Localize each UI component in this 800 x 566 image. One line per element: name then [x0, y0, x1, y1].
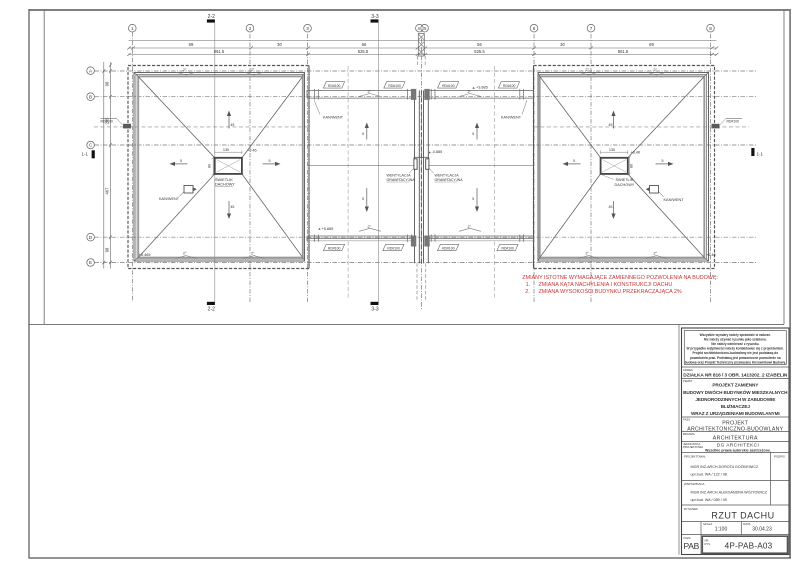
svg-text:45: 45	[230, 205, 234, 209]
svg-text:2°: 2°	[251, 68, 255, 72]
svg-text:98: 98	[104, 247, 109, 252]
svg-text:5: 5	[362, 132, 364, 136]
svg-text:3-3: 3-3	[371, 306, 378, 312]
svg-text:RYSUNEK: RYSUNEK	[684, 507, 698, 511]
svg-text:98: 98	[104, 81, 109, 86]
svg-text:2°: 2°	[183, 252, 187, 256]
svg-text:2-2: 2-2	[208, 14, 215, 20]
svg-text:RD#100: RD#100	[328, 84, 341, 88]
svg-text:MGR INŻ.ARCH.DOROTA GOŹKIEWICZ: MGR INŻ.ARCH.DOROTA GOŹKIEWICZ	[691, 464, 759, 469]
svg-text:2.: 2.	[525, 289, 530, 295]
svg-text:FAZA: FAZA	[684, 536, 691, 540]
svg-text:ADRES: ADRES	[683, 368, 693, 372]
svg-text:ŚWIETLIK: ŚWIETLIK	[215, 177, 233, 182]
svg-text:3: 3	[306, 26, 309, 31]
svg-text:861.5: 861.5	[214, 49, 225, 54]
svg-text:Nie należy odmierzać z rysunku: Nie należy odmierzać z rysunku.	[711, 342, 759, 346]
svg-text:-0.885: -0.885	[432, 150, 443, 154]
svg-text:6: 6	[533, 26, 536, 31]
svg-text:PROJEKTOWA: PROJEKTOWA	[683, 445, 703, 449]
svg-text:45: 45	[230, 123, 234, 127]
svg-text:Projekt architektoniczno-budow: Projekt architektoniczno-budowlany nie j…	[692, 351, 778, 355]
svg-text:TEMAT: TEMAT	[683, 379, 692, 383]
svg-text:525.5: 525.5	[358, 49, 369, 54]
svg-text:+6.46: +6.46	[631, 151, 641, 155]
svg-text:PAB: PAB	[684, 541, 700, 551]
svg-text:5: 5	[472, 197, 474, 201]
svg-text:1-1: 1-1	[757, 151, 764, 156]
svg-text:Wszelkie prawa autorskie zastr: Wszelkie prawa autorskie zastrzeżone.	[705, 448, 771, 452]
svg-text:2: 2	[249, 26, 252, 31]
svg-text:+3.885: +3.885	[476, 86, 488, 90]
svg-text:BUDOWY DWÓCH BUDYNKÓW MIESZKAL: BUDOWY DWÓCH BUDYNKÓW MIESZKALNYCH	[683, 388, 788, 395]
svg-text:45: 45	[609, 205, 613, 209]
svg-text:RYS.: RYS.	[705, 542, 711, 546]
svg-text:3-3: 3-3	[371, 14, 378, 20]
svg-text:5: 5	[573, 159, 575, 163]
svg-text:RD#100: RD#100	[502, 246, 515, 250]
svg-text:NR: NR	[705, 538, 709, 542]
svg-text:467: 467	[104, 187, 109, 195]
svg-text:130: 130	[609, 148, 615, 152]
svg-text:A: A	[89, 68, 93, 73]
svg-text:GRAWITACYJNA: GRAWITACYJNA	[387, 178, 416, 182]
svg-text:upr.bud. WA / 089 / 09: upr.bud. WA / 089 / 09	[691, 498, 727, 502]
svg-text:DZIAŁKA NR 816 / 3 OBR. 141320: DZIAŁKA NR 816 / 3 OBR. 1413202_2 IZABEL…	[683, 372, 788, 378]
svg-text:W przypadku wątpliwości należy: W przypadku wątpliwości należy kontaktow…	[687, 347, 785, 351]
svg-text:BRANŻA: BRANŻA	[683, 431, 695, 436]
svg-text:KAN/WENT: KAN/WENT	[664, 198, 685, 202]
svg-text:DATA: DATA	[743, 522, 750, 526]
svg-text:budowę oraz Projekt Techniczny: budowę oraz Projekt Techniczny przekazan…	[685, 360, 786, 364]
svg-text:56: 56	[362, 42, 367, 47]
svg-text:2°: 2°	[586, 252, 590, 256]
svg-text:GRAWITACYJNA: GRAWITACYJNA	[435, 178, 464, 182]
svg-text:RD#100: RD#100	[442, 246, 455, 250]
svg-text:ARCHITEKTURA: ARCHITEKTURA	[713, 435, 758, 441]
svg-text:2°: 2°	[368, 225, 372, 229]
svg-text:KAN/WENT: KAN/WENT	[323, 115, 344, 119]
svg-text:RD#100: RD#100	[727, 119, 740, 123]
svg-text:ZMIANA KĄTA NACHYLENIA I KONST: ZMIANA KĄTA NACHYLENIA I KONSTRUKCJI DAC…	[539, 282, 673, 288]
svg-text:upr.bud. WA / 122 / 08: upr.bud. WA / 122 / 08	[691, 473, 727, 477]
svg-text:ARCHITEKTONICZNO-BUDOWLANY: ARCHITEKTONICZNO-BUDOWLANY	[687, 426, 783, 432]
svg-text:5: 5	[362, 197, 364, 201]
svg-text:RD#100: RD#100	[101, 119, 114, 123]
svg-text:5: 5	[472, 132, 474, 136]
svg-text:ZMIANY ISTOTNE WYMAGAJĄCE ZAMI: ZMIANY ISTOTNE WYMAGAJĄCE ZAMIENNEGO POZ…	[522, 275, 718, 281]
svg-text:56: 56	[477, 42, 482, 47]
svg-text:2°: 2°	[183, 68, 187, 72]
svg-text:WENTYLACJA: WENTYLACJA	[435, 173, 460, 177]
svg-text:KAN/WENT: KAN/WENT	[159, 197, 180, 201]
svg-text:2°: 2°	[468, 225, 472, 229]
svg-text:+6.465: +6.465	[139, 253, 151, 257]
svg-text:2°: 2°	[468, 90, 472, 94]
svg-text:1: 1	[131, 26, 134, 31]
svg-text:+6.46: +6.46	[247, 149, 257, 153]
svg-text:861.5: 861.5	[618, 49, 629, 54]
svg-text:2-2: 2-2	[208, 306, 215, 312]
svg-text:2°: 2°	[654, 68, 658, 72]
svg-text:RD#100: RD#100	[388, 84, 401, 88]
svg-text:B: B	[89, 94, 92, 99]
svg-text:RD#100: RD#100	[442, 84, 455, 88]
svg-text:powadzenia prac. Podstawą jest: powadzenia prac. Podstawą jest prawomocn…	[690, 356, 781, 360]
svg-text:2°: 2°	[654, 252, 658, 256]
svg-text:ZMIANA WYSOKOŚCI BUDYNKU PRZEK: ZMIANA WYSOKOŚCI BUDYNKU PRZEKRACZAJĄCA …	[539, 287, 682, 295]
svg-text:JEDNORODZINNYCH W ZABUDOWIE: JEDNORODZINNYCH W ZABUDOWIE	[695, 397, 775, 402]
svg-text:MGR INŻ.ARCH.ALEKSANDRA WÓJTOW: MGR INŻ.ARCH.ALEKSANDRA WÓJTOWICZ	[691, 490, 768, 495]
svg-text:69: 69	[649, 42, 654, 47]
svg-text:RZUT DACHU: RZUT DACHU	[711, 511, 774, 521]
svg-text:4P-PAB-A03: 4P-PAB-A03	[725, 541, 773, 550]
svg-text:5: 5	[662, 159, 664, 163]
svg-text:E: E	[89, 260, 92, 265]
svg-text:130: 130	[223, 148, 229, 152]
svg-text:30.04.23: 30.04.23	[752, 527, 772, 533]
svg-text:RD#100: RD#100	[503, 84, 516, 88]
svg-text:SKALA: SKALA	[703, 522, 712, 526]
svg-text:1:100: 1:100	[715, 527, 728, 533]
svg-text:D: D	[89, 235, 93, 240]
svg-text:5: 5	[269, 159, 271, 163]
svg-text:30: 30	[560, 42, 565, 47]
svg-text:Nie należy używać rysunku jako: Nie należy używać rysunku jako szablonu.	[704, 337, 767, 341]
svg-text:1-1: 1-1	[82, 151, 89, 156]
svg-text:80: 80	[629, 164, 633, 168]
svg-text:WSPÓŁPRACA: WSPÓŁPRACA	[684, 481, 704, 486]
svg-text:5: 5	[424, 26, 427, 31]
svg-text:PODPIS: PODPIS	[774, 455, 785, 459]
svg-text:4: 4	[418, 26, 421, 31]
svg-text:2°: 2°	[251, 252, 255, 256]
svg-text:Wszystkie wymiary należy spraw: Wszystkie wymiary należy sprawdzić w nat…	[700, 333, 772, 337]
svg-text:5: 5	[180, 159, 182, 163]
svg-text:KAN/WENT: KAN/WENT	[501, 115, 522, 119]
svg-text:45: 45	[609, 123, 613, 127]
svg-text:+5.885: +5.885	[322, 227, 334, 231]
svg-text:ŚWIETLIK: ŚWIETLIK	[616, 177, 634, 182]
svg-text:30: 30	[277, 42, 282, 47]
svg-text:8: 8	[709, 26, 712, 31]
svg-text:WRAZ Z URZĄDZENIAMI BUDOWLANYM: WRAZ Z URZĄDZENIAMI BUDOWLANYMI	[691, 411, 780, 416]
svg-text:+6.46: +6.46	[706, 253, 716, 257]
svg-text:80: 80	[207, 164, 211, 168]
svg-text:2°: 2°	[586, 68, 590, 72]
svg-text:C: C	[89, 143, 93, 148]
svg-text:FAZA: FAZA	[683, 417, 690, 421]
svg-text:7: 7	[590, 26, 593, 31]
svg-text:BLIŹNIACZEJ: BLIŹNIACZEJ	[721, 402, 751, 409]
svg-text:WENTYLACJA: WENTYLACJA	[387, 173, 412, 177]
svg-text:DACHOWY: DACHOWY	[215, 183, 235, 187]
svg-text:PROJEKTOWAŁ: PROJEKTOWAŁ	[684, 455, 706, 459]
svg-text:525.5: 525.5	[474, 49, 485, 54]
svg-text:RD#100: RD#100	[387, 246, 400, 250]
svg-text:2°: 2°	[368, 90, 372, 94]
svg-text:RD#100: RD#100	[328, 246, 341, 250]
svg-text:1.: 1.	[526, 282, 531, 288]
svg-text:DACHOWY: DACHOWY	[615, 183, 635, 187]
svg-text:69: 69	[189, 42, 194, 47]
svg-text:PROJEKT ZAMIENNY: PROJEKT ZAMIENNY	[712, 383, 759, 388]
